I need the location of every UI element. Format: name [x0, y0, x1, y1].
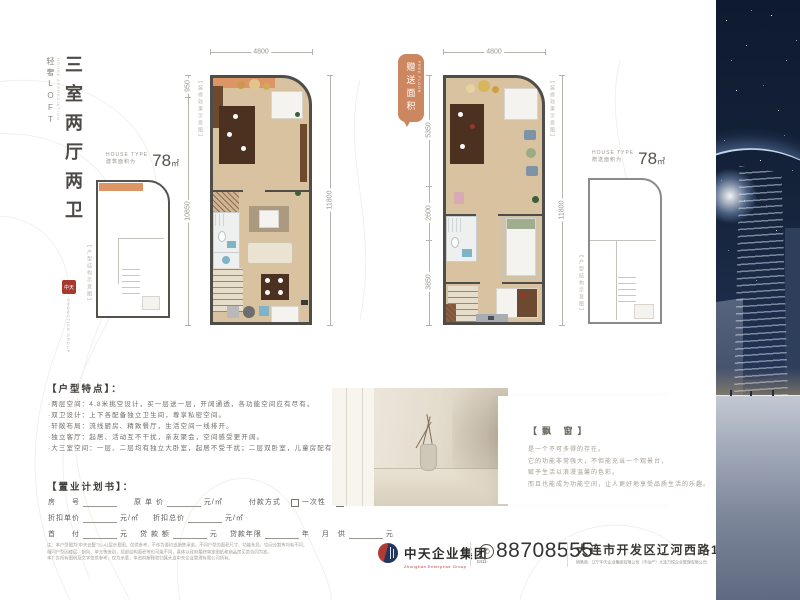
dim-950: 950 — [185, 78, 192, 94]
pillow — [507, 219, 535, 229]
interior-photo — [332, 388, 508, 506]
loan-blank — [173, 531, 207, 539]
decor-bowl — [249, 79, 260, 90]
floor-plan-structure-left — [96, 180, 170, 318]
dish — [470, 124, 475, 129]
dim-3850: 3850 — [426, 272, 433, 292]
bay-window-card: 【飘 窗】 是一个不可多得的存在。 它的功能非常强大，不但能充当一个观景台， 赋… — [498, 396, 674, 504]
bay-window-line: 它的功能非常强大，不但能充当一个观景台， — [528, 457, 674, 469]
plaza-ground — [716, 396, 800, 600]
appliance — [227, 306, 239, 318]
laptop — [488, 316, 494, 320]
sink2 — [259, 306, 269, 316]
dim-5350: 5350 — [426, 120, 433, 140]
tatami-area — [504, 88, 538, 120]
stairs — [618, 272, 636, 302]
area-type-label: 赠送面积为 — [592, 157, 634, 164]
down-payment-blank — [83, 531, 117, 539]
floor-plan-structure-right — [588, 178, 662, 324]
dim-tick — [559, 75, 565, 76]
right-small-plan-label: HOUSE TYPE 赠送面积为 78㎡ — [592, 150, 665, 170]
phone-area-code: 0411· — [477, 559, 488, 564]
house-type-label: HOUSE TYPE — [106, 152, 148, 159]
purchase-row-1: 房 号 原 单 价 元/㎡ 付款方式 一次性 商业贷 — [48, 497, 371, 507]
brand-seal-icon: 中天 — [62, 280, 76, 294]
disclaimer-line: 本广告所有图例及文字仅供参考，仅为示意，本资料解释权归属大连中天企业管理有限公司… — [47, 556, 364, 562]
loft-series-label: 轻奢LOFT — [45, 57, 56, 127]
blanket — [517, 289, 537, 317]
dish — [460, 144, 465, 149]
dish — [233, 114, 238, 119]
purchase-row-2: 折扣单价 元/㎡ 折扣总价 元/㎡ — [48, 513, 244, 523]
down-payment-unit: 元 — [120, 529, 128, 539]
brand-group-label: ZHONGTIAN GROUP — [66, 299, 71, 353]
dim-4800-plan2: 4800 — [484, 49, 504, 56]
dim-tick — [559, 325, 565, 326]
discount-unit-blank — [83, 515, 117, 523]
entry-landing — [271, 306, 299, 324]
base-glow — [716, 368, 800, 398]
loan-years-blank — [265, 531, 299, 539]
dim-tick — [443, 49, 444, 55]
dim-11800-plan1: 11800 — [327, 189, 334, 212]
dim-tick — [185, 97, 191, 98]
dim-tick — [312, 49, 313, 55]
plan1-note: 【装修效果示意图】 — [197, 78, 204, 141]
dim-2600: 2600 — [426, 203, 433, 223]
discount-total-label: 折扣总价 — [153, 513, 185, 523]
plate — [278, 278, 283, 283]
stairs — [122, 266, 140, 294]
company-block: 中天企业集团 Zhongtian Enterprise Group — [404, 543, 488, 569]
living-rug — [249, 206, 289, 232]
orig-price-label: 原 单 价 — [134, 497, 164, 507]
features-heading: 【户型特点】： — [47, 381, 123, 395]
switch-box — [301, 300, 308, 305]
inner-wall — [118, 238, 164, 239]
floor-plan-second-floor — [443, 75, 545, 325]
plant — [295, 112, 300, 117]
person-silhouette — [772, 390, 774, 396]
free-area-tag: 赠送面积 FREE FLOOR — [398, 54, 424, 122]
plant — [532, 196, 539, 203]
company-logo-icon — [378, 543, 398, 563]
company-name-en: Zhongtian Enterprise Group — [404, 564, 488, 569]
night-building-render — [716, 0, 800, 600]
chair-pink — [454, 192, 464, 204]
plate — [265, 278, 270, 283]
dim-10850: 10850 — [185, 199, 192, 222]
sofa — [247, 242, 293, 264]
room-number-blank — [83, 499, 117, 507]
dim-tick — [426, 186, 432, 187]
decor-bowl — [237, 81, 245, 89]
loan-unit: 元 — [210, 529, 218, 539]
left-small-plan-note: 【户型结构示意图】 — [86, 242, 93, 305]
laundry — [213, 252, 240, 269]
company-name: 中天企业集团 — [404, 543, 488, 562]
inner-wall — [118, 238, 119, 284]
disclaimer-line: 注：本户型图为“中天云墅”31-41层示意图，仅供参考，不作为要约或销售承诺。不… — [47, 543, 364, 549]
dim-tick — [426, 240, 432, 241]
lamp — [466, 84, 475, 93]
page-title: 三室两厅两卫 — [60, 55, 86, 229]
armchair — [526, 166, 538, 176]
orig-price-blank — [167, 499, 201, 507]
dish — [458, 112, 463, 117]
free-area-tag-text: 赠送面积 — [405, 62, 418, 114]
disclaimer-line: 相同户型因楼层、朝向、单元等差别，局部结构面积等也可能不同，具体以政府最终审定图… — [47, 550, 364, 556]
sideboard — [300, 124, 307, 182]
dish — [241, 146, 246, 151]
window-mullion — [346, 388, 347, 506]
shower — [448, 218, 462, 232]
room-number-label: 房 号 — [48, 497, 80, 507]
desk — [476, 314, 508, 322]
monthly-unit: 元 — [386, 529, 394, 539]
sink — [462, 249, 472, 257]
shower — [215, 214, 227, 226]
loan-years-unit: 年 — [302, 529, 310, 539]
right-small-plan-note: 【户型结构示意图】 — [578, 252, 585, 315]
wall — [265, 190, 309, 192]
dim-4800-plan1: 4800 — [251, 49, 271, 56]
wardrobe — [213, 192, 239, 212]
discount-unit-unit: 元/㎡ — [120, 513, 139, 523]
bathroom — [446, 216, 477, 262]
inner-wall — [590, 240, 656, 241]
pouf — [526, 148, 536, 158]
phone-icon: ✆ — [479, 544, 494, 559]
dim-11800-plan2: 11800 — [559, 199, 566, 222]
monthly-blank — [349, 531, 383, 539]
dim-tick — [185, 75, 191, 76]
area-value: 78㎡ — [638, 150, 665, 170]
inner-wall — [616, 240, 617, 320]
lamp — [478, 80, 490, 92]
stove — [243, 306, 255, 318]
footer-divider — [470, 542, 471, 567]
plan2-note: 【装修效果示意图】 — [549, 78, 556, 141]
area-value: 78㎡ — [152, 152, 179, 172]
down-payment-label: 首 付 — [48, 529, 80, 539]
monthly-label: 月 供 — [322, 529, 346, 539]
washer — [222, 256, 230, 264]
family-table — [450, 104, 484, 164]
purchase-row-3: 首 付 元 贷 款 额 元 贷款年限 年 月 供 元 — [48, 529, 394, 539]
area-type-label: 建筑面积为 — [106, 159, 148, 166]
free-area-tag-en: FREE FLOOR — [417, 61, 421, 93]
dim-tick — [545, 49, 546, 55]
dim-tick — [185, 325, 191, 326]
bed-master — [506, 218, 536, 276]
toilet — [218, 231, 226, 242]
bay-window-line: 赋予生活以浪漫温馨的色彩。 — [528, 468, 674, 480]
bay-window-line: 而且也能成为功能空间，让人更好地享受品质生活的乐趣。 — [528, 480, 674, 492]
bathroom — [213, 212, 240, 254]
loan-label: 贷 款 额 — [140, 529, 170, 539]
discount-total-unit: 元/㎡ — [225, 513, 244, 523]
logo-stripe — [390, 547, 391, 559]
bay-window-line: 是一个不可多得的存在。 — [528, 445, 674, 457]
entry-box — [634, 304, 654, 319]
address-sub: 销售商：辽宁中天企业集团有限公司（不动产）大连万悦企业管理有限公司 — [576, 559, 707, 565]
window-light — [332, 388, 374, 506]
dining-table — [219, 106, 255, 164]
tower-main — [734, 166, 788, 398]
vase — [420, 444, 437, 471]
dish — [227, 132, 232, 137]
house-type-label: HOUSE TYPE — [592, 150, 634, 157]
floor-plan-first-floor — [210, 75, 312, 325]
stars — [716, 0, 717, 1]
wall — [502, 282, 542, 284]
purchase-heading: 【置业计划书】： — [47, 479, 134, 493]
dim-tick — [327, 75, 333, 76]
window-mullion — [362, 388, 363, 506]
left-small-plan-label: HOUSE TYPE 建筑面积为 78㎡ — [106, 152, 179, 172]
sink — [227, 241, 236, 248]
decor-bowl — [263, 83, 270, 90]
checkbox-one-time — [291, 499, 299, 507]
bay-window-heading: 【飘 窗】 — [528, 424, 674, 437]
payment-label: 付款方式 — [249, 497, 281, 507]
lamp — [492, 86, 499, 93]
orig-price-unit: 元/㎡ — [204, 497, 223, 507]
plate — [278, 290, 283, 295]
logo-stripe — [393, 549, 394, 558]
pillow — [521, 293, 526, 298]
dim-tick — [210, 49, 211, 55]
person-silhouette — [730, 390, 732, 396]
armchair — [524, 130, 536, 140]
stair-void — [446, 304, 456, 322]
poster-canvas: 轻奢LOFT HOUSE APPRECIATION 三室两厅两卫 中天 ZHON… — [0, 0, 800, 600]
dim-tick — [426, 325, 432, 326]
balcony-strip — [99, 183, 143, 191]
dim-tick — [327, 325, 333, 326]
plate — [265, 290, 270, 295]
dim-tick — [426, 75, 432, 76]
wall — [446, 282, 480, 284]
loan-years-label: 贷款年限 — [230, 529, 262, 539]
coffee-table — [259, 210, 279, 228]
entry-box — [142, 296, 160, 310]
toilet — [451, 237, 459, 248]
dining-set — [261, 274, 289, 300]
tag-pointer — [403, 120, 411, 127]
footer-divider — [567, 542, 568, 567]
discount-unit-label: 折扣单价 — [48, 513, 80, 523]
payment-option-1: 一次性 — [302, 497, 326, 507]
discount-total-blank — [188, 515, 222, 523]
person-silhouette — [750, 391, 752, 396]
